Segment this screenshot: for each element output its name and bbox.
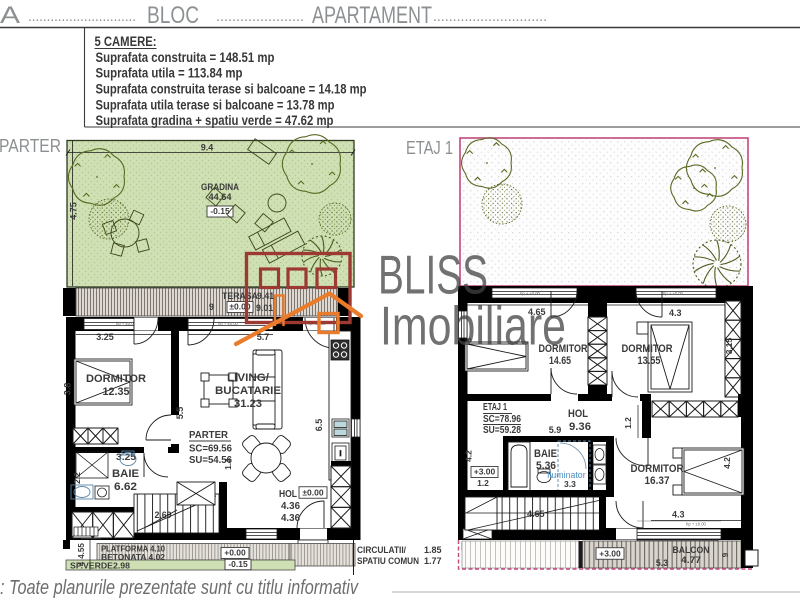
svg-text:4.55: 4.55	[77, 543, 86, 559]
svg-text:BAIE: BAIE	[534, 448, 557, 460]
svg-text:: Toate planurile prezentate s: : Toate planurile prezentate sunt cu tit…	[0, 577, 359, 599]
svg-text:-0.15: -0.15	[228, 559, 248, 569]
svg-text:Suprafata construita = 148.51: Suprafata construita = 148.51 mp	[96, 50, 275, 65]
svg-text:31.23: 31.23	[234, 398, 262, 410]
svg-text:Suprafata gradina + spatiu ver: Suprafata gradina + spatiu verde = 47.62…	[96, 113, 334, 128]
svg-text:Suprafata utila = 113.84 mp: Suprafata utila = 113.84 mp	[96, 66, 243, 81]
svg-text:Imobiliare: Imobiliare	[380, 295, 566, 357]
svg-text:3.3: 3.3	[564, 479, 576, 489]
svg-text:SC=69.56: SC=69.56	[189, 443, 232, 455]
svg-text:13.55: 13.55	[638, 355, 661, 367]
svg-text:1.85: 1.85	[424, 545, 442, 555]
svg-text:3.8: 3.8	[63, 383, 73, 396]
svg-text:.............................: .............................	[433, 8, 547, 25]
svg-text:4: 4	[77, 561, 86, 566]
svg-text:LIVING/: LIVING/	[227, 372, 270, 384]
svg-text:hp + ±0.00: hp + ±0.00	[663, 291, 684, 296]
svg-text:ETAJ 1: ETAJ 1	[483, 402, 507, 413]
svg-text:BALCON: BALCON	[673, 545, 710, 555]
svg-text:A: A	[0, 2, 20, 29]
svg-text:1.4: 1.4	[223, 458, 233, 470]
svg-text:4.77: 4.77	[681, 555, 701, 565]
svg-text:9.4: 9.4	[201, 143, 214, 153]
svg-text:PARTER: PARTER	[189, 429, 228, 441]
svg-text:BLOC: BLOC	[147, 2, 199, 29]
svg-text:1.2: 1.2	[623, 417, 633, 429]
svg-text:9: 9	[721, 552, 730, 557]
svg-text:2.69: 2.69	[154, 510, 171, 520]
svg-text:i: i	[340, 451, 342, 458]
svg-text:6.5: 6.5	[314, 419, 324, 432]
svg-text:+3.00: +3.00	[599, 548, 621, 558]
svg-text:±0.00: ±0.00	[302, 487, 323, 497]
svg-text:ETAJ 1: ETAJ 1	[406, 138, 453, 158]
svg-text:4.65: 4.65	[527, 509, 545, 519]
svg-text:GRADINA: GRADINA	[201, 182, 239, 192]
svg-text:3.15: 3.15	[724, 337, 734, 354]
svg-text:......................: ......................	[216, 8, 304, 25]
svg-text:14.65: 14.65	[549, 355, 571, 367]
svg-text:APARTAMENT: APARTAMENT	[312, 2, 432, 29]
svg-text:4.3: 4.3	[672, 510, 685, 520]
svg-text:PARTER: PARTER	[0, 136, 61, 156]
svg-text:DORMITOR: DORMITOR	[622, 343, 673, 355]
svg-text:BUCATARIE: BUCATARIE	[215, 385, 281, 397]
svg-text:Suprafata utila terase si balc: Suprafata utila terase si balcoane = 13.…	[96, 97, 335, 112]
svg-text:hp + ±0.00: hp + ±0.00	[686, 522, 707, 527]
svg-text:9.36: 9.36	[569, 421, 591, 433]
svg-text:5.9: 5.9	[549, 425, 562, 435]
svg-text:9.41: 9.41	[257, 291, 274, 301]
svg-text:4.36: 4.36	[281, 512, 300, 524]
svg-text:1.2: 1.2	[477, 478, 489, 488]
svg-text:3.25: 3.25	[96, 332, 114, 342]
svg-text:4.75: 4.75	[69, 202, 79, 220]
svg-text:5 CAMERE:: 5 CAMERE:	[95, 34, 157, 49]
svg-text:9: 9	[209, 302, 214, 312]
svg-text:SU=59.28: SU=59.28	[483, 425, 521, 436]
svg-text:1.77: 1.77	[424, 556, 442, 566]
svg-text:SC=78.96: SC=78.96	[483, 414, 521, 425]
svg-text:12.35: 12.35	[103, 386, 130, 398]
svg-text:4.2: 4.2	[464, 450, 474, 462]
svg-text:16.37: 16.37	[645, 475, 670, 487]
svg-text:DORMITOR: DORMITOR	[86, 373, 146, 385]
svg-text:CIRCULATII/: CIRCULATII/	[357, 545, 406, 555]
svg-text:+3.00: +3.00	[474, 467, 496, 477]
svg-text:HOL: HOL	[568, 408, 588, 420]
svg-text:4.3: 4.3	[669, 308, 682, 318]
svg-text:DORMITOR: DORMITOR	[631, 463, 684, 475]
svg-text:TERASA: TERASA	[222, 291, 259, 301]
svg-text:BAIE: BAIE	[112, 468, 139, 480]
svg-text:9.01: 9.01	[256, 303, 273, 313]
svg-text:hp + ±0.00: hp + ±0.00	[116, 321, 137, 326]
svg-text:HOL: HOL	[279, 488, 297, 500]
svg-text:hp + ±0.00: hp + ±0.00	[218, 321, 239, 326]
svg-text:4.2: 4.2	[722, 457, 732, 469]
svg-text:Suprafata construita terase s: Suprafata construita terase si balcoane …	[96, 81, 367, 96]
svg-text:.............................: .............................	[28, 8, 136, 25]
svg-text:5.3: 5.3	[656, 558, 668, 568]
svg-text:5.5: 5.5	[175, 407, 185, 420]
svg-text:+0.00: +0.00	[224, 548, 246, 558]
svg-text:6.62: 6.62	[114, 481, 137, 493]
svg-text:SPATIU COMUN: SPATIU COMUN	[357, 556, 419, 566]
svg-text:4.36: 4.36	[281, 500, 300, 512]
